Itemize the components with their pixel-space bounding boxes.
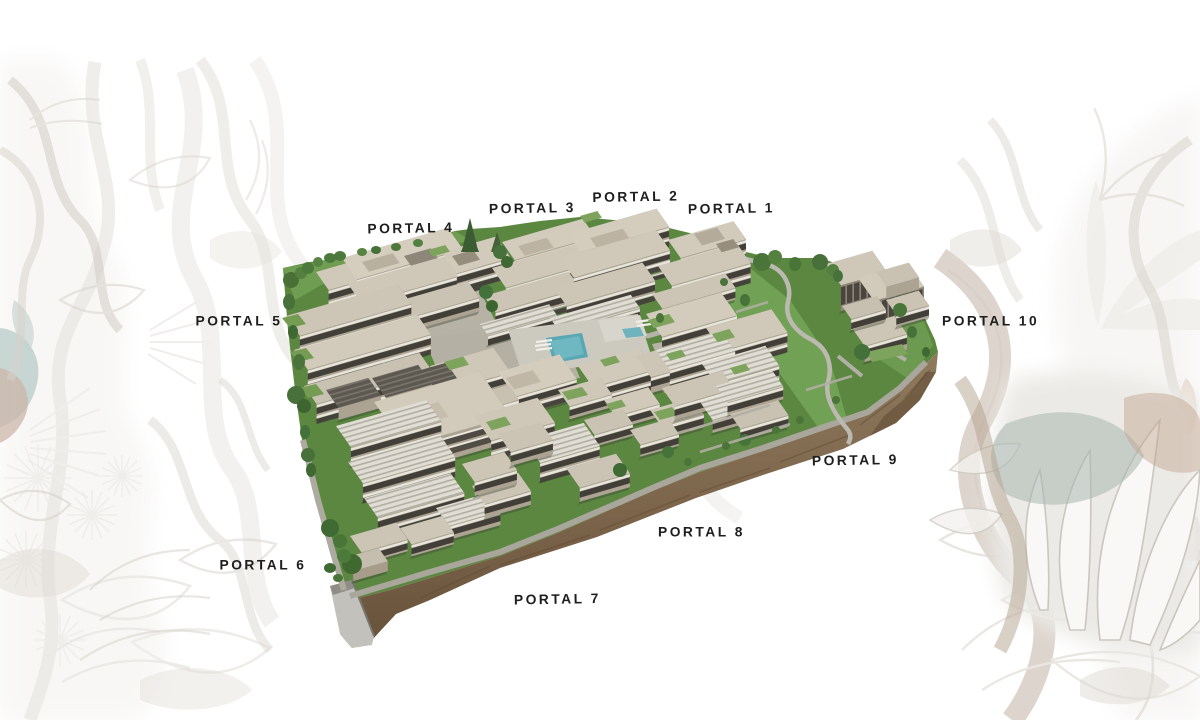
svg-text:PORTAL 9: PORTAL 9 (812, 452, 899, 469)
svg-text:PORTAL 5: PORTAL 5 (196, 314, 283, 329)
svg-text:PORTAL 6: PORTAL 6 (220, 558, 307, 573)
svg-text:PORTAL 8: PORTAL 8 (658, 525, 745, 540)
svg-text:PORTAL 7: PORTAL 7 (514, 591, 601, 608)
svg-text:PORTAL 10: PORTAL 10 (942, 314, 1039, 329)
svg-text:PORTAL 4: PORTAL 4 (367, 220, 454, 237)
svg-text:PORTAL 2: PORTAL 2 (592, 188, 679, 205)
svg-text:PORTAL 3: PORTAL 3 (489, 200, 576, 217)
svg-text:PORTAL 1: PORTAL 1 (688, 200, 775, 217)
